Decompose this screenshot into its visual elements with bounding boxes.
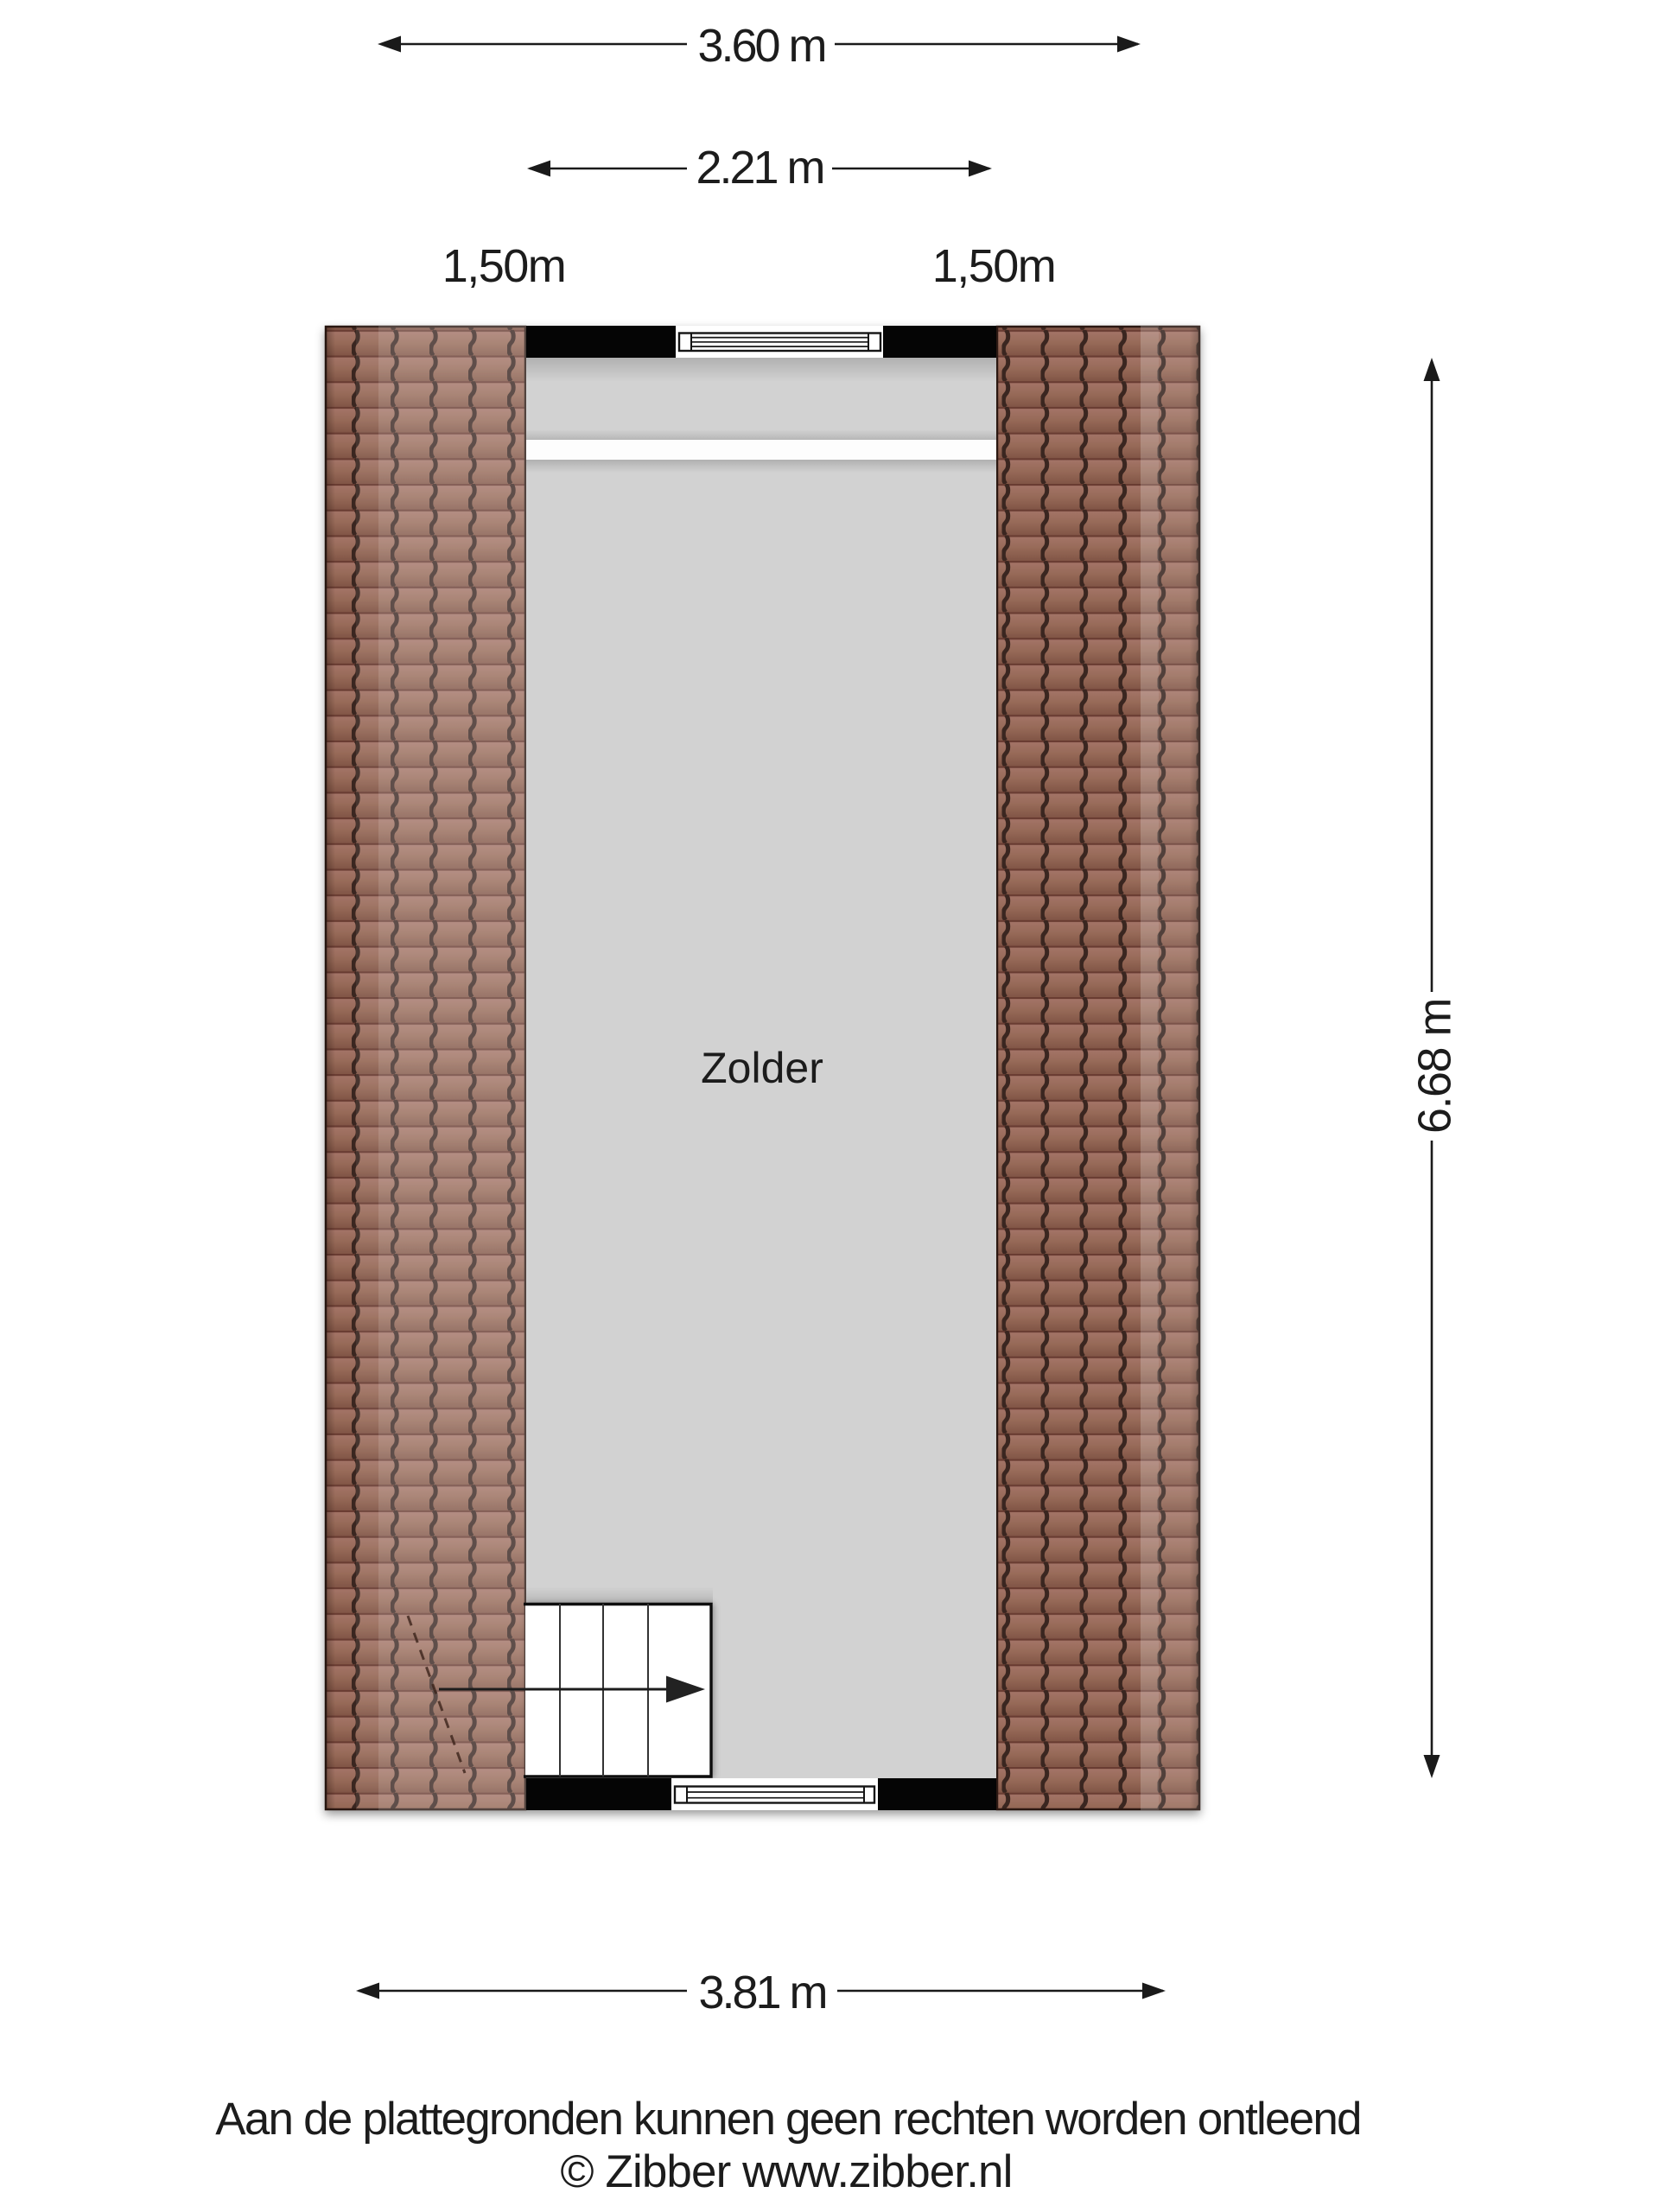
- svg-text:Zolder: Zolder: [701, 1044, 823, 1092]
- svg-text:1,50m: 1,50m: [932, 240, 1056, 292]
- svg-text:6.68 m: 6.68 m: [1409, 999, 1461, 1134]
- svg-text:2.21 m: 2.21 m: [696, 142, 823, 194]
- svg-text:3.60 m: 3.60 m: [697, 20, 824, 72]
- svg-text:Aan de plattegronden kunnen ge: Aan de plattegronden kunnen geen rechten…: [215, 2094, 1360, 2145]
- svg-text:1,50m: 1,50m: [442, 240, 566, 292]
- svg-text:© Zibber www.zibber.nl: © Zibber www.zibber.nl: [561, 2146, 1013, 2197]
- svg-text:3.81 m: 3.81 m: [698, 1967, 825, 2018]
